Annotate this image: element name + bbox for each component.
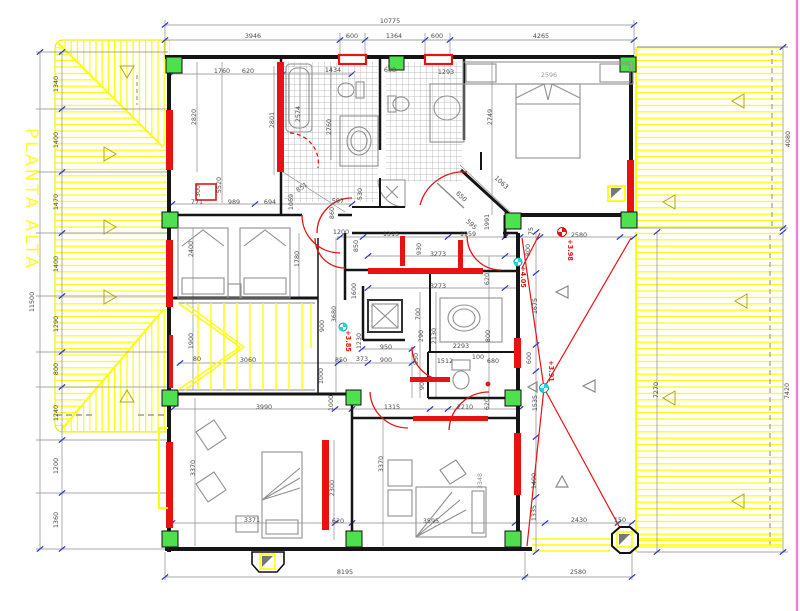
level-marker xyxy=(514,258,522,266)
dimension-label: 1290 xyxy=(52,316,60,332)
plan-title: PLANTA ALTA xyxy=(21,128,41,271)
dimension-label: 2580 xyxy=(571,231,587,239)
bed xyxy=(416,487,486,537)
level-marker xyxy=(540,384,549,393)
dimension-label: 1315 xyxy=(384,403,400,411)
dimension-label: 90 xyxy=(418,382,426,390)
bed xyxy=(178,228,228,298)
dimension-label: 771 xyxy=(191,198,203,206)
column xyxy=(346,390,361,405)
dimension-label: 2574 xyxy=(294,106,302,122)
left-roof xyxy=(55,40,169,432)
dimension-label: 600 xyxy=(525,352,533,364)
window xyxy=(425,55,452,64)
dimension-label: 1069 xyxy=(287,194,295,210)
dimension-label: 3371 xyxy=(244,516,260,524)
toilet xyxy=(452,360,470,370)
dimension-label: 5520 xyxy=(215,177,223,193)
closet xyxy=(388,490,412,516)
vanity xyxy=(440,298,502,342)
dimension-label: 989 xyxy=(228,198,240,206)
dimension-label: 1400 xyxy=(52,132,60,148)
dimension-label: 1364 xyxy=(386,32,402,40)
dimension-label: 300 xyxy=(194,185,202,197)
level-label: +4.05 xyxy=(519,266,527,288)
dimension-label: 3370 xyxy=(189,460,197,476)
dimension-label: 608 xyxy=(384,66,396,74)
roof-hatch xyxy=(608,186,625,201)
dimension-label: 2130 xyxy=(430,328,438,344)
dimension-label: 950 xyxy=(380,343,392,351)
dimension-label: 1200 xyxy=(333,228,349,236)
dimension-label: 850 xyxy=(412,353,420,365)
stairs xyxy=(178,303,315,390)
dimension-label: 900 xyxy=(318,320,326,332)
dimension-label: 694 xyxy=(264,198,276,206)
dimension-label: 1293 xyxy=(438,68,454,76)
dimension-label: 4265 xyxy=(533,32,549,40)
dimension-label: 1000 xyxy=(317,368,325,384)
dimension-label: 2820 xyxy=(190,109,198,125)
dimension-label: 80 xyxy=(193,355,201,363)
dimension-label: 1400 xyxy=(52,256,60,272)
window xyxy=(339,55,366,64)
dimension-label: 620 xyxy=(483,273,491,285)
dimension-label: 10775 xyxy=(380,17,400,25)
dimension-label: 1780 xyxy=(293,251,301,267)
closet xyxy=(388,460,412,486)
nightstand xyxy=(228,284,241,298)
dimension-label: 3370 xyxy=(377,456,385,472)
dimension-label: 2400 xyxy=(187,241,195,257)
dimension-label: 3273 xyxy=(430,282,446,290)
dimension-label: 4080 xyxy=(784,131,792,147)
armchair xyxy=(196,472,226,502)
dimension-label: 2596 xyxy=(541,71,557,79)
right-roof-top xyxy=(636,47,788,228)
level-label: +3.98 xyxy=(566,239,574,261)
armchair xyxy=(196,420,226,450)
dimension-label: 530 xyxy=(356,188,364,200)
dimension-label: 11500 xyxy=(28,292,36,312)
dimension-label: 800 xyxy=(484,330,492,342)
dimension-label: 1340 xyxy=(52,76,60,92)
level-label: +3.85 xyxy=(344,330,352,352)
dimension-label: 1535 xyxy=(531,395,539,411)
direction-arrow-up-icon xyxy=(556,476,568,487)
dimension-label: 2210 xyxy=(457,403,473,411)
column xyxy=(162,390,178,406)
dimension-label: 1315 xyxy=(383,230,399,238)
dimension-label: 800 xyxy=(524,244,532,256)
dimension-label: 600 xyxy=(431,32,443,40)
column xyxy=(162,212,178,228)
dimension-label: 930 xyxy=(415,243,423,255)
column xyxy=(162,531,178,547)
dimension-label: 7420 xyxy=(783,383,791,399)
dimension-label: 3348 xyxy=(476,473,484,489)
dimension-label: 1512 xyxy=(437,357,453,365)
column xyxy=(166,57,182,73)
dimension-label: 800 xyxy=(52,363,60,375)
direction-arrow-left-icon xyxy=(583,380,595,392)
dimension-label: 75 xyxy=(527,227,535,235)
dimension-label: 1360 xyxy=(52,512,60,528)
dimension-label: 1600 xyxy=(350,283,358,299)
dimension-label: 1675 xyxy=(531,298,539,314)
column xyxy=(346,531,362,547)
dimension-label: 1760 xyxy=(214,67,230,75)
dimension-label: 1335 xyxy=(530,505,538,521)
dimension-label: 620 xyxy=(242,67,254,75)
dimension-label: 1991 xyxy=(483,214,491,230)
dimension-label: 1000 xyxy=(327,395,335,411)
floor-plan-drawing: PLANTA ALTA 1077539466001364600426511500… xyxy=(0,0,800,611)
dimension-label: 1900 xyxy=(187,333,195,349)
floor-plan-canvas: PLANTA ALTA 1077539466001364600426511500… xyxy=(0,0,800,611)
dimension-label: 3595 xyxy=(423,517,439,525)
octagon-pillar xyxy=(612,527,638,553)
dimension-label: 600 xyxy=(346,32,358,40)
dimension-label: 597 xyxy=(332,197,344,205)
dimension-label: 2580 xyxy=(570,568,586,576)
dimension-label: 2300 xyxy=(328,480,336,496)
bed xyxy=(516,84,580,158)
dimension-label: 7270 xyxy=(652,382,660,398)
door-arc xyxy=(467,236,501,270)
dimension-label: 2801 xyxy=(268,112,276,128)
dimension-label: 2293 xyxy=(453,342,469,350)
chimney xyxy=(252,552,284,572)
dimension-label: 1230 xyxy=(355,333,363,349)
dimension-label: 850 xyxy=(335,356,347,364)
dimension-label: 2760 xyxy=(325,119,333,135)
dimension-label: 3946 xyxy=(245,32,261,40)
dimension-label: 3680 xyxy=(330,306,338,322)
direction-arrow-left-icon xyxy=(556,286,568,298)
dimension-label: 700 xyxy=(414,308,422,320)
dimension-label: 290 xyxy=(417,330,425,342)
column xyxy=(505,213,521,229)
dimension-label: 620 xyxy=(483,398,491,410)
dimension-label: 680 xyxy=(487,357,499,365)
dimension-label: 3060 xyxy=(240,356,256,364)
dimension-label: 8195 xyxy=(337,568,353,576)
dimension-label: 1434 xyxy=(325,66,341,74)
dimension-label: 1200 xyxy=(52,458,60,474)
bed xyxy=(240,228,290,298)
dimension-label: 1959 xyxy=(460,230,476,238)
dimension-label: 1400 xyxy=(530,473,538,489)
shower-tray xyxy=(378,180,405,207)
dimension-label: 900 xyxy=(380,356,392,364)
dimension-label: 2430 xyxy=(571,516,587,524)
column xyxy=(621,212,637,228)
dimension-label: 1063 xyxy=(493,174,510,191)
dimension-label: 2749 xyxy=(486,109,494,125)
dimension-label: 860 xyxy=(328,207,336,219)
level-marker xyxy=(558,228,567,237)
dimension-label: 150 xyxy=(614,516,626,524)
level-label: +3.91 xyxy=(547,360,555,382)
dimension-label: 1470 xyxy=(52,194,60,210)
dimension-label: 850 xyxy=(352,240,360,252)
dimension-label: 620 xyxy=(332,517,344,525)
dimension-label: 373 xyxy=(356,355,368,363)
dimension-label: 100 xyxy=(472,353,484,361)
dimension-label: 1240 xyxy=(52,405,60,421)
column xyxy=(505,531,521,547)
dimension-label: 3273 xyxy=(430,250,446,258)
armchair xyxy=(440,460,466,484)
column xyxy=(505,390,521,406)
door-arc xyxy=(315,238,345,268)
dimension-label: 3990 xyxy=(256,403,272,411)
